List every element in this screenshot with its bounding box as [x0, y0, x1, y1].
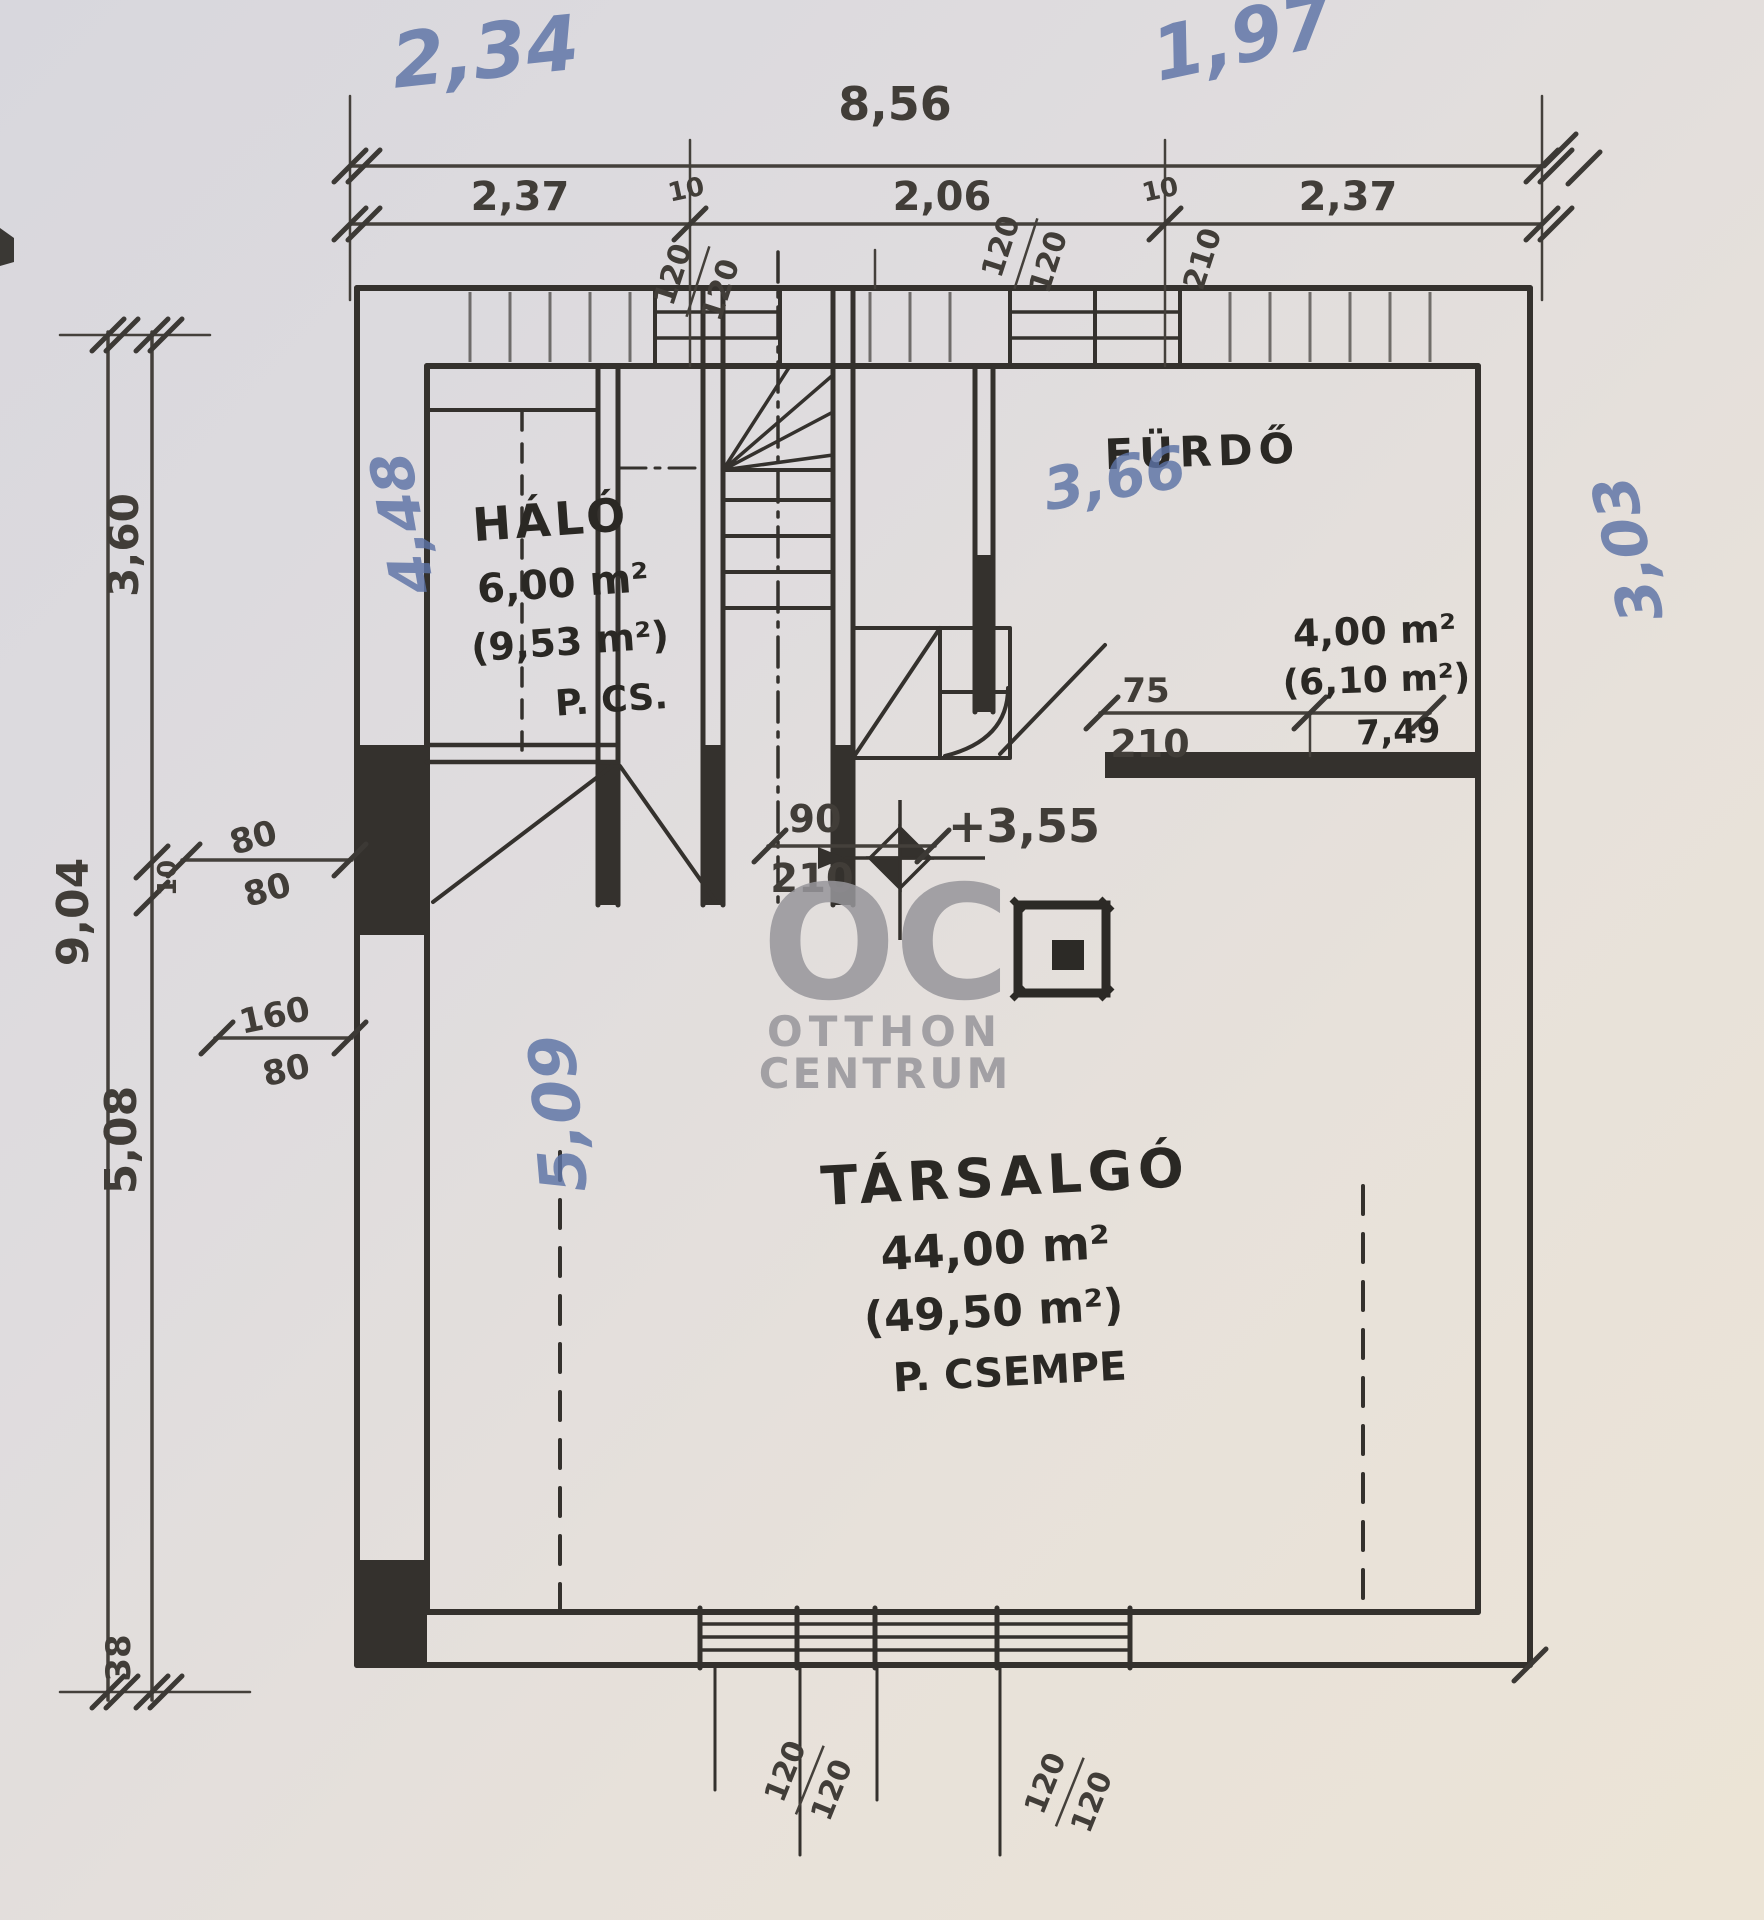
- bath-door-width: 75: [1122, 671, 1169, 711]
- floor-plan-scan: 8,56 2,37 10 2,06 10 2,37 120 120 120 12…: [0, 0, 1764, 1920]
- dim-seg-left: 2,37: [471, 174, 570, 220]
- bedroom-name: HÁLÓ: [471, 487, 631, 552]
- floor-plan-drawing: 8,56 2,37 10 2,06 10 2,37 120 120 120 12…: [0, 0, 1764, 1920]
- hall-door-width: 90: [789, 797, 842, 841]
- dim-left-base: 38: [99, 1634, 139, 1681]
- bathroom-area-gross: (6,10 m²): [1282, 657, 1471, 705]
- bathroom-note: 7,49: [1356, 711, 1441, 754]
- dim-total-left: 9,04: [48, 858, 99, 967]
- bathroom-area: 4,00 m²: [1292, 606, 1457, 656]
- watermark: OC OTTHON CENTRUM: [759, 852, 1012, 1098]
- dim-seg-right: 2,37: [1299, 174, 1398, 220]
- dim-left-wall: 10: [153, 860, 183, 896]
- dim-left-lower: 5,08: [96, 1086, 147, 1195]
- pen-lounge-side: 5,09: [515, 1032, 602, 1196]
- watermark-line2: CENTRUM: [759, 1049, 1012, 1098]
- dim-total-top: 8,56: [838, 77, 952, 131]
- level-value: +3,55: [948, 799, 1100, 853]
- dim-seg-mid: 2,06: [893, 174, 992, 220]
- bedroom-floor: P. CS.: [554, 676, 669, 725]
- bath-door-height: 210: [1110, 722, 1189, 766]
- dim-left-upper: 3,60: [99, 493, 148, 597]
